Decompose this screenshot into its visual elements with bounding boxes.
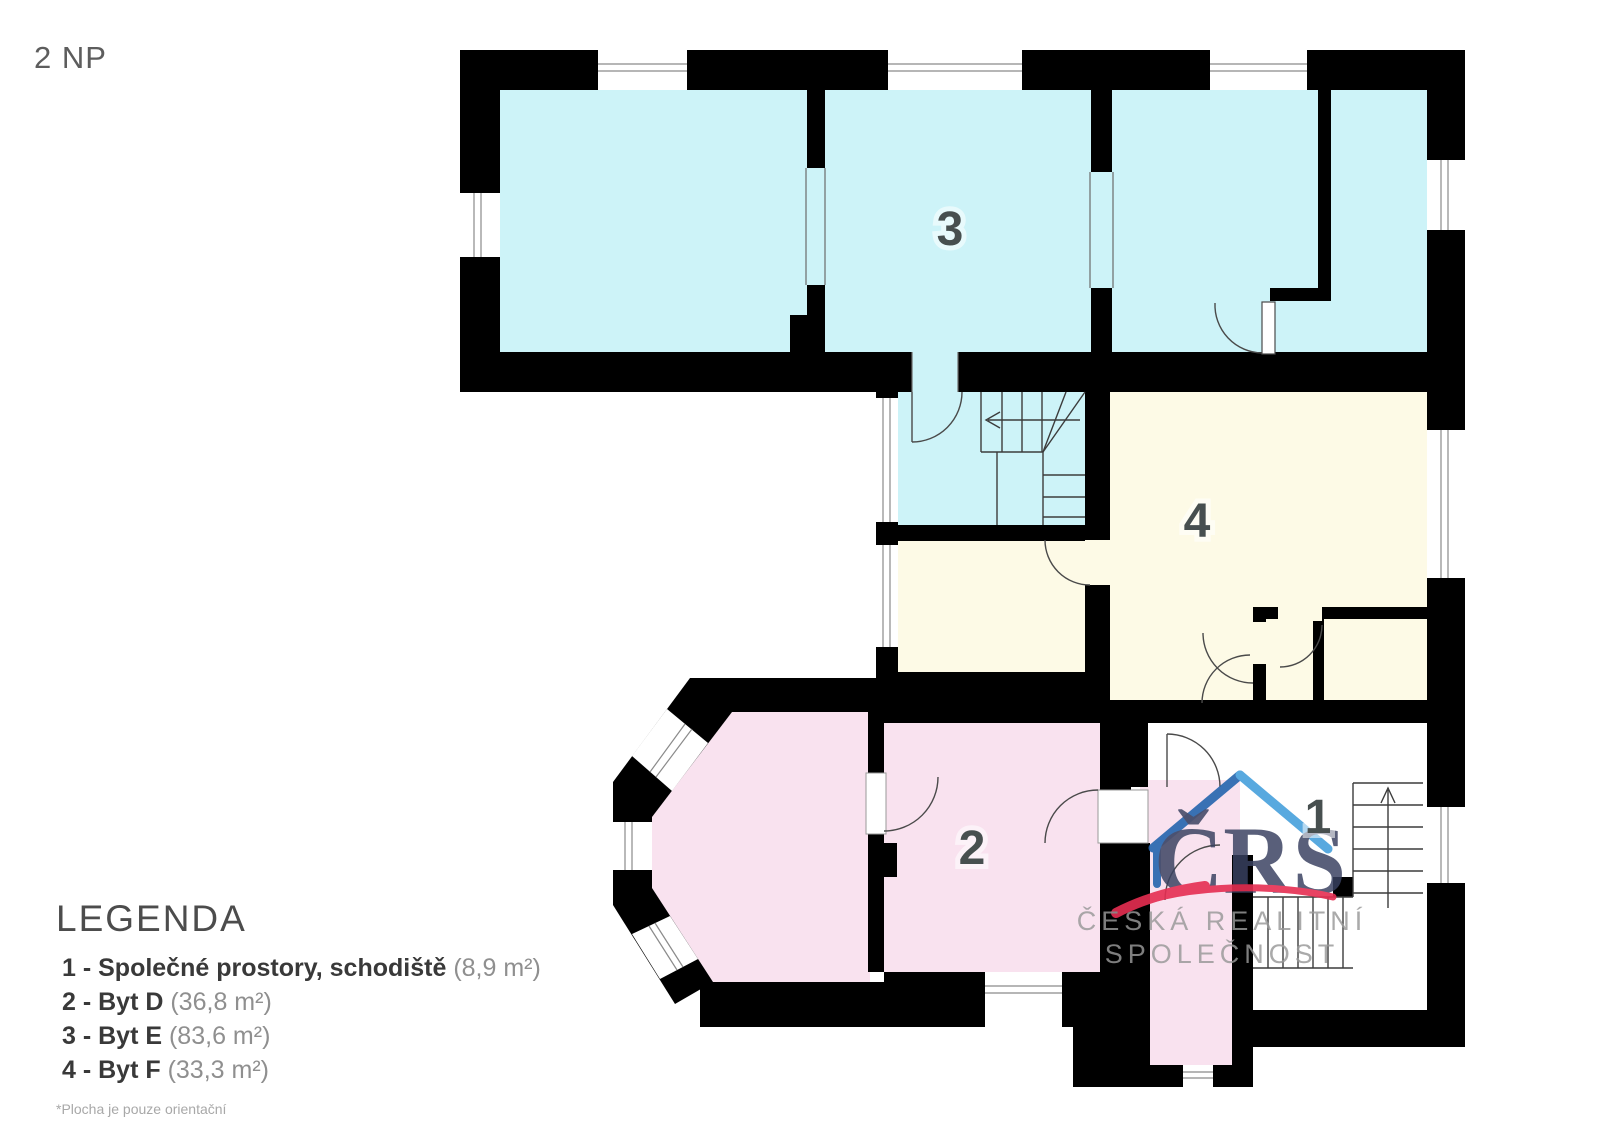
logo-name-line2: SPOLEČNOST <box>1105 938 1340 969</box>
legend-item-2: 2 - Byt D (36,8 m²) <box>56 988 541 1017</box>
door-gap-bay <box>866 773 886 834</box>
legend-footnote: *Plocha je pouze orientační <box>56 1101 541 1117</box>
window-stairwell-left-2 <box>876 545 898 647</box>
door-gap-stairwell <box>1085 540 1110 585</box>
room-byt-f-main-area <box>1100 380 1440 710</box>
window-bottom <box>985 972 1062 1027</box>
label-room-3: 3 <box>937 203 964 256</box>
legend-item-1: 1 - Společné prostory, schodiště (8,9 m²… <box>56 954 541 983</box>
room-byt-d-main-area <box>870 712 1110 972</box>
legend-item-4-area: (33,3 m²) <box>168 1056 269 1084</box>
legend-item-2-name: 2 - Byt D <box>62 988 163 1016</box>
opening-left <box>804 168 826 285</box>
legend-item-3-name: 3 - Byt E <box>62 1022 162 1050</box>
stairwell-area <box>880 380 1100 540</box>
door-leaf-top-right <box>1262 302 1275 354</box>
window-bay-left <box>613 822 652 870</box>
opening-right <box>1089 172 1114 288</box>
door-gap-room2 <box>1098 790 1148 843</box>
page-title: 2 NP <box>34 40 107 76</box>
room-byt-e-left-area <box>480 70 820 365</box>
window-protrusion-bottom <box>1183 1065 1213 1087</box>
legend: LEGENDA 1 - Společné prostory, schodiště… <box>56 898 541 1117</box>
window-top-3 <box>1210 50 1307 90</box>
window-top-2 <box>888 50 1022 90</box>
window-right-3 <box>1427 807 1465 883</box>
legend-item-3: 3 - Byt E (83,6 m²) <box>56 1022 541 1051</box>
door-gap-byt-f <box>1253 622 1266 664</box>
opening-stairwell-top <box>912 352 958 392</box>
label-room-2: 2 <box>959 822 986 875</box>
legend-heading: LEGENDA <box>56 898 541 940</box>
room-byt-f-lower-left-area <box>880 530 1110 680</box>
legend-item-2-area: (36,8 m²) <box>170 988 271 1016</box>
window-top-1 <box>598 50 687 90</box>
legend-item-1-name: 1 - Společné prostory, schodiště <box>62 954 446 982</box>
legend-item-4-name: 4 - Byt F <box>62 1056 161 1084</box>
label-room-4: 4 <box>1184 495 1211 548</box>
legend-item-4: 4 - Byt F (33,3 m²) <box>56 1056 541 1085</box>
window-left <box>460 193 500 257</box>
door-gap-small-room <box>1278 605 1322 621</box>
legend-item-1-area: (8,9 m²) <box>453 954 541 982</box>
floorplan-page: ČRS ČESKÁ REALITNÍ SPOLEČNOST 3 4 2 1 2 … <box>0 0 1600 1130</box>
window-right-1 <box>1427 160 1465 230</box>
label-room-1: 1 <box>1305 791 1332 844</box>
window-stairwell-left-1 <box>876 398 898 522</box>
logo-name-line1: ČESKÁ REALITNÍ <box>1077 905 1368 936</box>
legend-item-3-area: (83,6 m²) <box>169 1022 270 1050</box>
window-right-2 <box>1427 430 1465 578</box>
